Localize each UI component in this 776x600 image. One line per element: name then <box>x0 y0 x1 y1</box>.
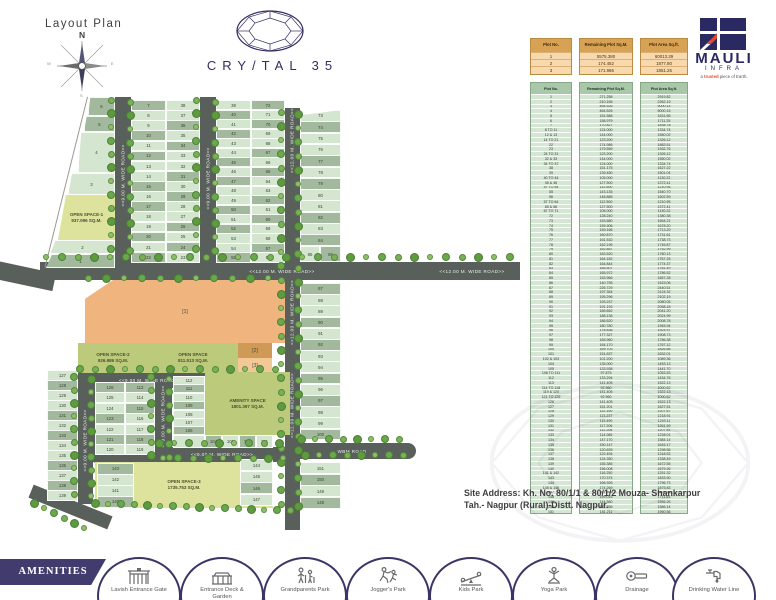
tree-icon <box>226 365 235 374</box>
tree-icon <box>215 439 224 448</box>
tree-icon <box>127 153 134 160</box>
tree-icon <box>108 124 114 130</box>
tree-icon <box>121 275 127 281</box>
tree-icon <box>363 254 369 260</box>
tree-icon <box>87 479 96 488</box>
tree-icon <box>212 126 218 132</box>
plot-cell: 75 <box>300 133 341 145</box>
tree-icon <box>70 399 79 408</box>
tree-icon <box>136 365 144 373</box>
tree-icon <box>261 440 268 447</box>
tree-icon <box>282 253 291 262</box>
tree-icon <box>212 180 218 186</box>
tree-icon <box>211 139 219 147</box>
road-label: <<9.00 M. WIDE ROAD>> <box>204 103 213 253</box>
tree-icon <box>211 219 220 228</box>
road-label: <<9.00 M. WIDE ROAD>> <box>119 100 128 250</box>
tree-icon <box>294 166 303 175</box>
tree-icon <box>157 275 164 282</box>
tree-icon <box>108 232 114 238</box>
zone: [2] <box>238 343 272 358</box>
amenity-label: Lavish Entrance Gate <box>110 587 168 594</box>
tree-icon <box>278 109 285 116</box>
amenity-label: Jogger's Park <box>359 587 417 594</box>
tree-icon <box>122 366 128 372</box>
tree-icon <box>108 97 115 104</box>
tree-icon <box>155 439 164 448</box>
tree-icon <box>88 415 95 422</box>
plot-cell: 81 <box>300 200 341 212</box>
tree-icon <box>193 232 199 238</box>
plot-cell: 95 <box>300 373 341 385</box>
tree-icon <box>265 275 271 281</box>
tree-icon <box>87 401 95 409</box>
tree-icon <box>299 254 305 260</box>
plot-cell: 8 <box>131 110 166 121</box>
tree-icon <box>295 153 302 160</box>
tree-icon <box>126 111 135 120</box>
tree-icon <box>385 451 393 459</box>
tree-icon <box>193 97 200 104</box>
tree-icon <box>297 435 306 444</box>
plot-cell: 149 <box>300 485 341 497</box>
tree-icon <box>273 506 281 514</box>
tree-icon <box>87 375 96 384</box>
tree-icon <box>295 265 302 272</box>
tree-icon <box>346 253 355 262</box>
grandparents-park-icon <box>293 566 317 586</box>
plot-cell: 20 <box>131 232 166 243</box>
tree-icon <box>295 293 301 299</box>
tree-icon <box>211 247 219 255</box>
tree-icon <box>261 507 267 513</box>
tree-icon <box>246 274 255 283</box>
tree-icon <box>105 501 111 507</box>
plot-cell: 17 <box>131 201 166 212</box>
plot-cell: 11 <box>131 141 166 152</box>
amenity-label: Yoga Park <box>525 587 583 594</box>
plot-cell: 98 <box>300 406 341 418</box>
tree-icon <box>277 430 285 438</box>
plot-cell: 78 <box>300 167 341 179</box>
amenity-label: Drainage <box>608 587 666 594</box>
tree-icon <box>442 253 450 261</box>
tree-icon <box>174 274 183 283</box>
tree-icon <box>71 439 78 446</box>
tree-icon <box>41 505 47 511</box>
tree-icon <box>353 435 362 444</box>
tree-icon <box>193 151 200 158</box>
tree-icon <box>87 453 95 461</box>
plot-cell: 143 <box>97 463 134 475</box>
tree-icon <box>139 254 146 261</box>
tree-icon <box>117 500 125 508</box>
tree-icon <box>277 234 286 243</box>
tree-icon <box>357 451 366 460</box>
tree-icon <box>107 109 116 118</box>
tree-icon <box>108 205 115 212</box>
tree-icon <box>182 366 188 372</box>
tree-icon <box>131 501 138 508</box>
tree-icon <box>192 137 200 145</box>
tree-icon <box>152 366 159 373</box>
tree-icon <box>71 387 78 394</box>
plot-cell: 97 <box>300 395 341 407</box>
tree-icon <box>294 418 302 426</box>
plot-cell: 124 <box>95 403 125 414</box>
plot-cell: 123 <box>95 413 125 424</box>
tree-icon <box>294 334 303 343</box>
plot-cell: 76 <box>300 144 341 156</box>
tree-icon <box>166 365 175 374</box>
tree-icon <box>427 254 433 260</box>
tree-icon <box>102 274 111 283</box>
plot-cell: 9 <box>131 120 166 131</box>
tree-icon <box>126 193 134 201</box>
tree-icon <box>138 274 146 282</box>
plot-cell: 83 <box>300 223 341 235</box>
site-address: Site Address: Kh. No. 80/1/1 & 80/1/2 Mo… <box>464 488 764 511</box>
tree-icon <box>295 405 301 411</box>
plot-cell: 82 <box>300 212 341 224</box>
tree-icon <box>278 389 285 396</box>
tree-icon <box>88 441 94 447</box>
tree-icon <box>410 253 419 262</box>
tree-icon <box>459 254 466 261</box>
tree-icon <box>147 425 155 433</box>
tree-icon <box>107 191 115 199</box>
tree-icon <box>212 207 219 214</box>
tree-icon <box>88 467 95 474</box>
tree-icon <box>331 254 338 261</box>
tree-icon <box>190 455 197 462</box>
tree-icon <box>126 139 134 147</box>
tree-icon <box>58 253 66 261</box>
plot-cell: 94 <box>300 361 341 373</box>
amenities-ribbon: AMENITIES <box>0 559 106 585</box>
tree-icon <box>280 455 286 461</box>
tree-icon <box>61 515 68 522</box>
plot-cell: 74 <box>300 121 341 133</box>
tree-icon <box>278 305 284 311</box>
tree-icon <box>395 254 402 261</box>
tree-icon <box>204 454 213 463</box>
road-label: <<12.00 M. WIDE ROAD>> <box>417 267 527 276</box>
tree-icon <box>70 373 78 381</box>
amenity-label: Drinking Water Line <box>685 587 743 594</box>
tree-icon <box>220 455 226 461</box>
tree-icon <box>506 253 514 261</box>
plot-cell: 87 <box>300 283 341 295</box>
plot-cell: 96 <box>300 384 341 396</box>
tree-icon <box>185 439 193 447</box>
tree-icon <box>400 452 407 459</box>
tree-icon <box>192 245 200 253</box>
tree-icon <box>295 489 302 496</box>
tree-icon <box>192 109 201 118</box>
zone-label: [2] <box>238 343 272 358</box>
tree-icon <box>75 254 82 261</box>
kids-park-icon <box>459 566 483 586</box>
amenity-label: Entrance Deck & Garden <box>193 587 251 600</box>
plot-cell: 2 <box>50 240 115 254</box>
site-address-line2: Tah.- Nagpur (Rural)-Distt. Nagpur. <box>464 500 764 512</box>
tree-icon <box>186 253 194 261</box>
tree-icon <box>294 194 302 202</box>
amenity-label: Grandparents Park <box>276 587 334 594</box>
tree-icon <box>126 165 135 174</box>
tree-icon <box>474 253 483 262</box>
tree-icon <box>211 111 220 120</box>
tree-icon <box>247 505 256 514</box>
plot-cell: 145 <box>240 471 273 483</box>
tree-icon <box>256 365 264 373</box>
tree-icon <box>212 99 219 106</box>
tree-icon <box>294 278 303 287</box>
tree-icon <box>234 454 242 462</box>
tree-icon <box>235 254 241 260</box>
plot-cell: 121 <box>95 434 125 445</box>
tree-icon <box>294 362 302 370</box>
plot-cell: 147 <box>240 494 273 506</box>
tree-icon <box>294 138 302 146</box>
tree-icon <box>278 221 285 228</box>
tree-icon <box>278 417 284 423</box>
tree-icon <box>212 234 218 240</box>
plot-cell: 21 <box>131 242 166 253</box>
tree-icon <box>277 346 286 355</box>
tree-icon <box>229 275 236 282</box>
plot-cell: 84 <box>300 234 341 246</box>
tree-icon <box>165 414 174 423</box>
layout-plan-page: Layout Plan N W E S CRY/TAL 35 <box>0 0 776 600</box>
drinking-water-icon <box>702 566 726 586</box>
tree-icon <box>294 110 303 119</box>
tree-icon <box>301 451 310 460</box>
tree-icon <box>107 254 113 260</box>
open-space-label: OPEN SPACE811.513 SQ.M. <box>148 343 238 373</box>
tree-icon <box>70 519 79 528</box>
tree-icon <box>242 366 248 372</box>
tree-icon <box>250 253 258 261</box>
tree-icon <box>275 439 284 448</box>
plot-cell: 14 <box>131 171 166 182</box>
entrance-gate-icon <box>127 566 151 586</box>
entrance-deck-icon <box>210 566 234 586</box>
tree-icon <box>76 365 84 373</box>
tree-icon <box>50 509 58 517</box>
tree-icon <box>71 491 78 498</box>
plot-cell: 77 <box>300 155 341 167</box>
joggers-park-icon <box>376 566 400 586</box>
zone: [1] <box>85 280 285 343</box>
tree-icon <box>157 503 163 509</box>
tree-icon <box>148 413 154 419</box>
tree-icon <box>396 436 403 443</box>
tree-icon <box>272 366 279 373</box>
tree-icon <box>193 205 200 212</box>
plot-cell: 120 <box>95 444 125 455</box>
plot-cell: 140 <box>97 496 134 508</box>
drainage-icon <box>625 566 649 586</box>
tree-icon <box>148 439 155 446</box>
tree-icon <box>295 461 301 467</box>
tree-icon <box>344 452 351 459</box>
plot-cell: 125 <box>95 392 125 403</box>
plot-cell: 86 <box>320 246 341 262</box>
tree-icon <box>295 181 301 187</box>
tree-icon <box>381 435 389 443</box>
plot-cell: 148 <box>300 497 341 509</box>
tree-icon <box>166 428 172 434</box>
tree-icon <box>147 399 156 408</box>
tree-icon <box>295 209 302 216</box>
plot-cell: 7 <box>131 100 166 111</box>
diamond-watermark-icon <box>480 368 760 558</box>
tree-icon <box>201 440 208 447</box>
tree-icon <box>165 440 173 448</box>
plot-cell: 92 <box>300 339 341 351</box>
tree-icon <box>277 318 285 326</box>
tree-icon <box>174 454 182 462</box>
tree-icon <box>88 493 94 499</box>
tree-icon <box>295 125 301 131</box>
tree-icon <box>193 178 199 184</box>
tree-icon <box>295 349 301 355</box>
tree-icon <box>210 274 218 282</box>
tree-icon <box>295 377 302 384</box>
tree-icon <box>148 387 155 394</box>
tree-icon <box>278 137 284 143</box>
tree-icon <box>90 253 99 262</box>
tree-icon <box>211 193 219 201</box>
plot-cell: 142 <box>97 474 134 486</box>
tree-icon <box>312 436 318 442</box>
tree-icon <box>143 501 152 510</box>
tree-icon <box>267 254 274 261</box>
tree-icon <box>325 435 333 443</box>
plot-cell: 122 <box>95 424 125 435</box>
tree-icon <box>108 178 114 184</box>
plot-cell: 16 <box>131 191 166 202</box>
tree-icon <box>81 525 87 531</box>
plot-cell: 151 <box>300 462 341 474</box>
tree-icon <box>192 163 201 172</box>
tree-icon <box>329 451 337 459</box>
open-space-label: OPEN SPACE-1937.096 SQ.M. <box>58 195 115 240</box>
tree-icon <box>294 306 302 314</box>
plot-cell: 15 <box>131 181 166 192</box>
tree-icon <box>295 321 302 328</box>
tree-icon <box>154 253 163 262</box>
tree-icon <box>107 245 115 253</box>
tree-icon <box>126 219 135 228</box>
plot-cell: 73 <box>300 110 341 122</box>
tree-icon <box>171 254 177 260</box>
tree-icon <box>92 366 99 373</box>
plot-cell: 18 <box>131 211 166 222</box>
plot-cell: 80 <box>300 189 341 201</box>
tree-icon <box>107 137 115 145</box>
tree-icon <box>212 153 219 160</box>
tree-icon <box>218 253 227 262</box>
tree-icon <box>192 191 200 199</box>
tree-icon <box>278 277 285 284</box>
tree-icon <box>106 365 115 374</box>
tree-icon <box>169 502 177 510</box>
tree-icon <box>91 499 100 508</box>
tree-icon <box>250 455 257 462</box>
plot-cell: 13 <box>131 161 166 172</box>
open-space-area: 1801.397 SQ.M. <box>231 404 264 410</box>
tree-icon <box>316 452 322 458</box>
tree-icon <box>295 237 301 243</box>
tree-icon <box>277 178 286 187</box>
tree-icon <box>340 436 347 443</box>
tree-icon <box>278 193 284 199</box>
tree-icon <box>85 275 92 282</box>
tree-icon <box>277 122 286 131</box>
tree-icon <box>70 425 78 433</box>
plot-cell: 90 <box>300 317 341 329</box>
tree-icon <box>314 253 322 261</box>
tree-icon <box>127 180 133 186</box>
tree-icon <box>294 474 302 482</box>
yoga-park-icon <box>542 566 566 586</box>
tree-icon <box>147 451 156 460</box>
open-space: OPEN SPACE-1937.096 SQ.M. <box>58 195 115 240</box>
tree-icon <box>107 163 116 172</box>
plot-cell: 12 <box>131 151 166 162</box>
tree-icon <box>70 477 78 485</box>
tree-icon <box>264 454 273 463</box>
plot-cell: 93 <box>300 350 341 362</box>
amenity-label: Kids Park <box>442 587 500 594</box>
tree-icon <box>372 452 378 458</box>
tree-icon <box>88 389 94 395</box>
open-space-area: 937.096 SQ.M. <box>71 218 101 224</box>
tree-icon <box>127 99 134 106</box>
plot-cell: 19 <box>131 222 166 233</box>
open-space-area: 1735.753 SQ.M. <box>168 485 201 491</box>
plot-cell: 91 <box>300 328 341 340</box>
tree-icon <box>278 361 284 367</box>
tree-icon <box>278 333 285 340</box>
tree-icon <box>71 465 77 471</box>
tree-icon <box>193 275 199 281</box>
tree-icon <box>122 253 130 261</box>
tree-icon <box>368 436 374 442</box>
tree-icon <box>278 473 284 479</box>
open-space-area: 926.986 SQ.M. <box>98 358 128 364</box>
tree-icon <box>211 165 220 174</box>
tree-icon <box>287 507 294 514</box>
tree-icon <box>294 390 303 399</box>
zone-label: [1] <box>85 280 285 343</box>
tree-icon <box>294 222 303 231</box>
tree-icon <box>108 151 115 158</box>
tree-icon <box>147 373 155 381</box>
tree-icon <box>71 413 77 419</box>
tree-icon <box>166 454 173 461</box>
tree-icon <box>491 254 497 260</box>
tree-icon <box>196 365 204 373</box>
tree-icon <box>127 126 133 132</box>
open-space: OPEN SPACE811.513 SQ.M. <box>148 343 238 373</box>
tree-icon <box>209 505 215 511</box>
tree-icon <box>212 366 219 373</box>
plot-cell: 100 <box>300 429 341 441</box>
